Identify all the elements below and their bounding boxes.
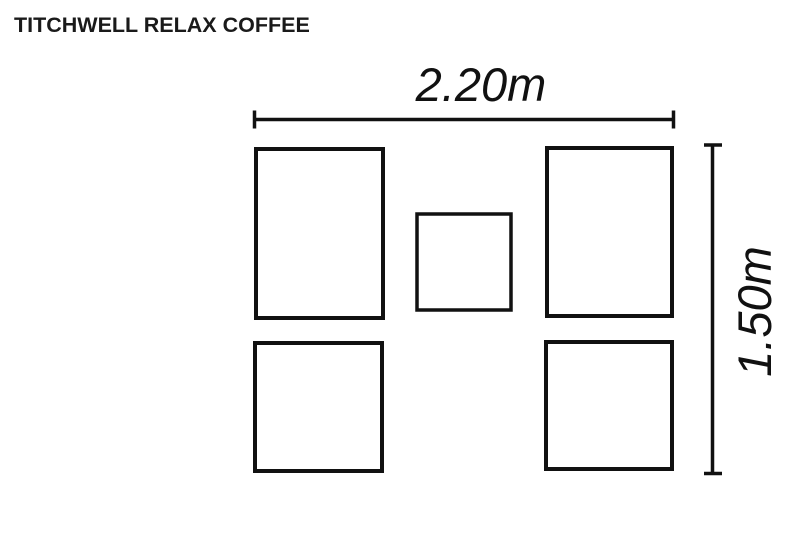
svg-text:1.50m: 1.50m [728, 246, 781, 377]
svg-text:2.20m: 2.20m [415, 58, 547, 111]
svg-text:TITCHWELL RELAX COFFEE: TITCHWELL RELAX COFFEE [14, 13, 310, 37]
